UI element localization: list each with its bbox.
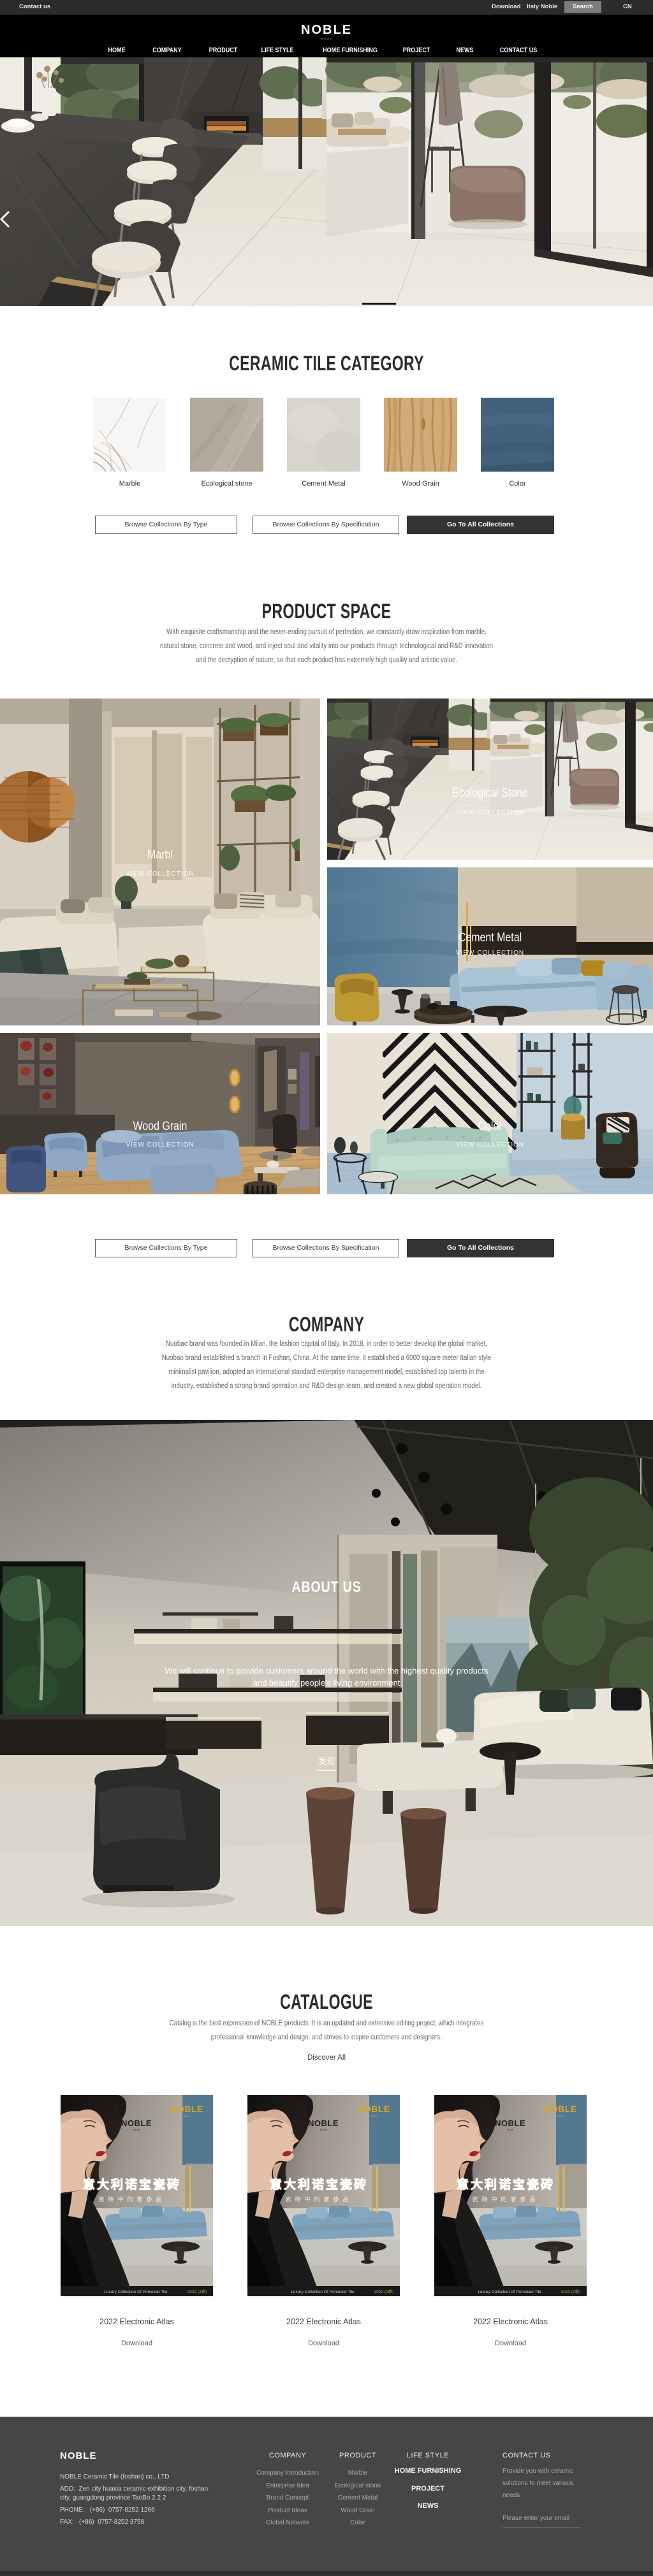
- svg-text:瓷砖中的奢侈品: 瓷砖中的奢侈品: [98, 2196, 165, 2203]
- svg-text:MILAN: MILAN: [184, 2115, 191, 2118]
- svg-text:Luxury Collection Of Porcelain: Luxury Collection Of Porcelain Tile: [104, 2290, 168, 2294]
- svg-text:2022 (2季): 2022 (2季): [187, 2289, 207, 2294]
- svg-text:意大利诺宝瓷砖: 意大利诺宝瓷砖: [83, 2177, 181, 2192]
- svg-text:NOBLE: NOBLE: [170, 2104, 203, 2114]
- svg-text:NOBLE: NOBLE: [121, 2118, 152, 2128]
- svg-text:MILAN: MILAN: [133, 2129, 140, 2131]
